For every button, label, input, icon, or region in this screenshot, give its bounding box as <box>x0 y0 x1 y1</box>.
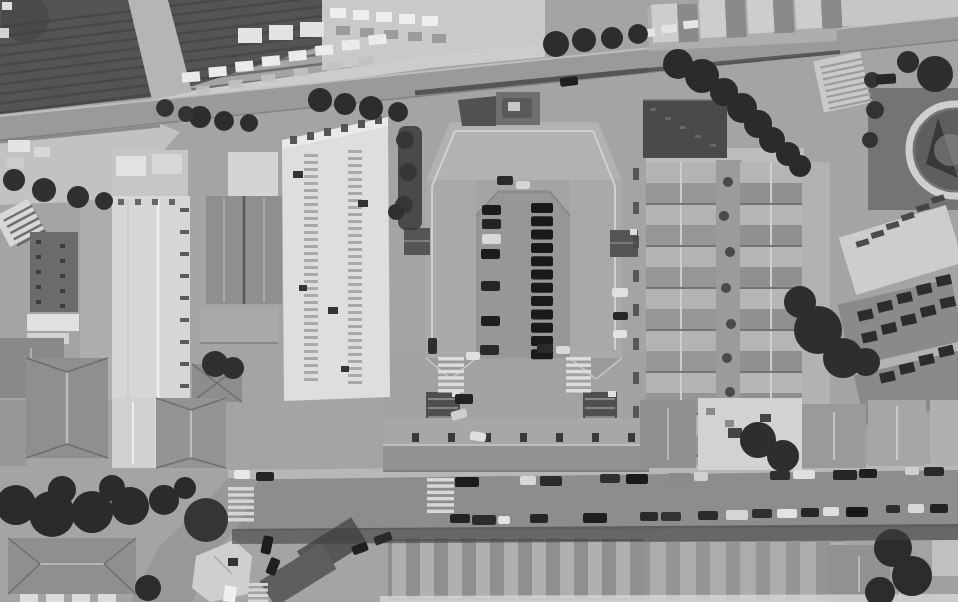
parked-car <box>626 474 648 484</box>
skylight-strip <box>304 315 318 318</box>
roadside-trucks <box>368 34 387 46</box>
shed-vents <box>36 240 41 244</box>
trailers-white <box>422 16 438 26</box>
roadside-trucks-2 <box>359 56 374 65</box>
skylight-strip <box>304 259 318 262</box>
warehouse-ticks <box>180 296 189 300</box>
trailers-gray <box>336 26 350 35</box>
truck <box>34 147 50 157</box>
crosswalk-plaza-west <box>438 376 464 380</box>
rubble <box>706 408 715 415</box>
pleat-ridges <box>420 538 434 598</box>
parked-car <box>924 467 944 476</box>
tree <box>3 169 25 191</box>
tree <box>178 106 194 122</box>
rowhouse-b-valleys <box>740 245 802 247</box>
pleat-ridges <box>616 538 630 598</box>
shed-vents <box>60 259 65 263</box>
skylight-strip <box>348 374 362 377</box>
crosswalk-west-street <box>228 487 254 491</box>
roadside-trucks-2 <box>228 80 243 89</box>
roof-hatch <box>341 366 349 372</box>
trailers-white <box>399 14 415 24</box>
pavilion-ribs <box>585 407 615 409</box>
parked-car <box>846 507 868 517</box>
top-house-roofs-light <box>651 3 679 42</box>
north-annex-skylight <box>508 102 520 111</box>
rowhouse-a-valleys <box>646 245 716 247</box>
pavilion-hatch <box>228 558 238 566</box>
pleat-ridges <box>476 538 490 598</box>
top-house-roofs-light <box>795 0 823 29</box>
pleat-ridges <box>448 538 462 598</box>
crosswalk-plaza-west <box>438 357 464 361</box>
skylight-strip <box>348 213 362 216</box>
pleat-ridges <box>588 538 602 598</box>
skylight-strip <box>304 189 318 192</box>
skylight-strip <box>348 192 362 195</box>
chimneys <box>592 433 599 442</box>
tree <box>156 99 174 117</box>
tree <box>214 111 234 131</box>
crosswalk-curve <box>248 594 268 597</box>
field-sheds <box>269 25 293 40</box>
parked-car <box>482 219 501 229</box>
tree <box>388 204 404 220</box>
skylight-strip <box>304 203 318 206</box>
roadside-trucks <box>262 55 281 67</box>
car-column <box>531 323 553 333</box>
parked-car <box>886 505 900 513</box>
parked-car <box>497 176 513 185</box>
east-fence-posts <box>633 270 639 282</box>
skylight-strip <box>304 350 318 353</box>
tree <box>135 575 161 601</box>
crosswalk-plaza-east <box>566 363 591 367</box>
crosswalk-plaza-east <box>566 389 591 393</box>
skylight-strip <box>304 364 318 367</box>
tree <box>32 178 56 202</box>
shed-vents <box>36 285 41 289</box>
crosswalk-street <box>427 497 454 501</box>
parked-car <box>472 515 496 525</box>
tree <box>719 211 729 221</box>
crosswalk-plaza-east <box>566 383 591 387</box>
pavilion-ribs <box>585 416 615 418</box>
trailers-white <box>353 10 369 20</box>
parked-car <box>498 516 510 524</box>
pavilion-mark <box>608 391 616 397</box>
white-roof-bits <box>98 594 116 602</box>
skylight-strip <box>304 217 318 220</box>
tree <box>721 283 731 293</box>
north-shed-roof <box>152 154 182 174</box>
white-strip-shed <box>27 314 79 331</box>
east-fence-posts <box>633 338 639 350</box>
car-column <box>531 283 553 293</box>
parked-car <box>600 474 620 483</box>
light-patch <box>932 540 958 576</box>
parked-car <box>833 470 857 480</box>
warehouse-windows <box>118 199 124 205</box>
parked-car <box>520 476 536 485</box>
skylight-strip <box>348 241 362 244</box>
parked-car <box>694 472 708 481</box>
top-house-roofs-light <box>747 0 775 34</box>
east-fence-posts <box>633 168 639 180</box>
skylight-strip <box>348 234 362 237</box>
tree <box>725 247 735 257</box>
pleat-ridges <box>650 542 666 600</box>
skylight-strip <box>348 220 362 223</box>
tree <box>396 131 414 149</box>
tree <box>572 28 596 52</box>
tree <box>726 319 736 329</box>
tree <box>222 357 244 379</box>
rowhouse-a-valleys <box>646 287 716 289</box>
car-column <box>531 296 553 306</box>
crosswalk-curve <box>248 583 268 586</box>
crosswalk-curve <box>248 589 268 592</box>
gable-windows <box>324 128 331 136</box>
white-van <box>223 585 237 602</box>
car-column <box>531 309 553 319</box>
warehouse-ticks <box>180 384 189 388</box>
pleat-ridges <box>532 538 546 598</box>
tree <box>48 476 76 504</box>
roadside-trucks-2 <box>326 62 341 71</box>
roadside-trucks-2 <box>261 74 276 83</box>
top-house-roofs-dark <box>725 0 747 38</box>
skylight-strip <box>348 164 362 167</box>
corner-structure <box>0 28 9 38</box>
skylight-strip <box>348 367 362 370</box>
warehouse-windows <box>152 199 158 205</box>
pleat-ridges <box>740 542 756 600</box>
tree <box>897 51 919 73</box>
skylight-strip <box>348 304 362 307</box>
corner-hip-house <box>8 538 136 594</box>
roadside-trucks <box>208 66 227 78</box>
parked-car <box>428 338 437 354</box>
tree <box>852 348 880 376</box>
tree <box>917 56 953 92</box>
tree <box>725 387 735 397</box>
parked-car <box>450 514 470 523</box>
south-wing-upper <box>383 418 649 445</box>
skylight-strip <box>304 245 318 248</box>
skylight-strip <box>348 346 362 349</box>
tree <box>334 93 356 115</box>
roadside-trucks-2 <box>294 68 309 77</box>
white-roof-bits <box>72 594 90 602</box>
rowhouse-a-valleys <box>646 203 716 205</box>
rubble-dark <box>728 428 742 438</box>
corner-structure <box>2 2 12 10</box>
chimneys <box>412 433 419 442</box>
warehouse-ticks <box>180 318 189 322</box>
parked-car <box>537 344 553 353</box>
skylight-strip <box>304 301 318 304</box>
tree <box>95 192 113 210</box>
shed-vents <box>60 274 65 278</box>
tree <box>601 27 623 49</box>
rowhouse-a-valleys <box>646 329 716 331</box>
parked-car <box>876 73 897 84</box>
top-house-roofs-dark <box>821 0 843 29</box>
tree <box>789 155 811 177</box>
courtyard-floor <box>476 190 570 358</box>
aerial-photo-canvas <box>0 0 958 602</box>
parked-car <box>234 470 250 479</box>
gable-windows <box>341 124 348 132</box>
skylight-strip <box>348 269 362 272</box>
skylight-strip <box>348 353 362 356</box>
car-column <box>531 243 553 253</box>
trailers-white <box>376 12 392 22</box>
warehouse-ticks <box>180 340 189 344</box>
tree <box>67 186 89 208</box>
pavilion-ribs <box>428 407 458 409</box>
parked-car <box>640 512 658 521</box>
pleat-ridges <box>800 542 816 600</box>
parked-car <box>793 470 815 479</box>
pleat-ridges <box>392 538 406 598</box>
skylight-strip <box>304 273 318 276</box>
car-column <box>531 203 553 213</box>
parked-car <box>905 467 919 475</box>
tree <box>862 132 878 148</box>
south-wing-lower <box>383 445 649 472</box>
pleat-ridges <box>504 538 518 598</box>
skylight-strip <box>348 178 362 181</box>
parked-car <box>481 316 500 326</box>
crosswalk-street <box>427 484 454 488</box>
skylight-strip <box>348 381 362 384</box>
parked-car <box>455 477 479 487</box>
west-wing <box>426 180 476 358</box>
small-house <box>0 400 26 466</box>
tree <box>866 101 884 119</box>
roadside-trucks <box>341 39 360 51</box>
gable-windows <box>307 132 314 140</box>
parked-car <box>668 473 692 483</box>
car-column <box>531 256 553 266</box>
crosswalk-plaza-west <box>438 389 464 393</box>
crosswalk-west-street <box>228 493 254 497</box>
pleat-ridges <box>710 542 726 600</box>
parked-cars-road-top <box>683 20 699 30</box>
trailers-gray <box>408 32 422 41</box>
north-sheds <box>228 152 278 196</box>
roadside-trucks-2 <box>196 85 211 94</box>
trailers-gray <box>432 34 446 43</box>
skylight-strip <box>304 308 318 311</box>
parked-car <box>726 510 748 520</box>
roadside-trucks <box>288 50 307 62</box>
skylight-strip <box>304 252 318 255</box>
skylight-strip <box>304 336 318 339</box>
shed-vents <box>36 255 41 259</box>
skylight-strip <box>304 168 318 171</box>
skylight-strip <box>348 318 362 321</box>
skylight-strip <box>304 378 318 381</box>
chimneys <box>448 433 455 442</box>
skylight-strip <box>304 357 318 360</box>
shed-vents <box>36 300 41 304</box>
tree <box>399 163 417 181</box>
warehouse-ticks <box>180 362 189 366</box>
tree <box>722 353 732 363</box>
tree <box>174 477 196 499</box>
pavilion-ribs <box>585 398 615 400</box>
skylight-strip <box>348 276 362 279</box>
tree <box>628 24 648 44</box>
parked-car <box>698 511 718 520</box>
east-fence-posts <box>633 304 639 316</box>
roof-hatch <box>293 171 303 178</box>
shed-vents <box>60 304 65 308</box>
parked-car <box>481 281 500 291</box>
skylight-strip <box>304 280 318 283</box>
east-fence-posts <box>633 372 639 384</box>
rowhouse-b-valleys <box>740 329 802 331</box>
crosswalk-west-street <box>228 512 254 516</box>
shed-vents <box>36 270 41 274</box>
skylight-strip <box>304 266 318 269</box>
chimneys <box>520 433 527 442</box>
flat-roof-stipple <box>680 126 686 129</box>
shed-vents <box>60 289 65 293</box>
tree <box>359 96 383 120</box>
rowhouse-a-valleys <box>646 371 716 373</box>
roof-hatch <box>358 200 368 207</box>
skylight-strip <box>348 171 362 174</box>
tree <box>99 475 125 501</box>
warehouse-windows <box>135 199 141 205</box>
parked-car <box>823 507 839 516</box>
parked-car <box>540 476 562 486</box>
parked-car <box>930 504 948 513</box>
roadside-trucks <box>182 71 201 83</box>
skylight-strip <box>348 185 362 188</box>
skylight-strip <box>304 182 318 185</box>
warehouse-ticks <box>180 252 189 256</box>
car-column <box>531 230 553 240</box>
crosswalk-west-street <box>228 506 254 510</box>
truck <box>8 140 30 152</box>
east-fence-posts <box>633 202 639 214</box>
parked-car <box>556 346 570 354</box>
flat-roof-stipple <box>665 117 671 120</box>
crosswalk-west-street <box>228 518 254 522</box>
car-column <box>531 270 553 280</box>
shed-vents <box>60 244 65 248</box>
tree <box>892 556 932 596</box>
crosswalk-plaza-west <box>438 363 464 367</box>
rowhouse-b-valleys <box>740 203 802 205</box>
parked-car <box>530 514 548 523</box>
parked-car <box>770 471 790 480</box>
skylight-strip <box>348 283 362 286</box>
pleat-ridges <box>680 542 696 600</box>
trailers-white <box>330 8 346 18</box>
car-column <box>531 216 553 226</box>
skylight-strip <box>304 224 318 227</box>
warehouse-ticks <box>180 230 189 234</box>
skylight-strip <box>304 322 318 325</box>
skylight-strip <box>304 161 318 164</box>
top-house-roofs-dark <box>773 0 795 33</box>
chimneys <box>628 433 635 442</box>
skylight-strip <box>348 339 362 342</box>
white-roof-bits <box>20 594 38 602</box>
parked-car <box>613 312 628 320</box>
crosswalk-plaza-east <box>566 370 591 374</box>
annex-shadow <box>458 96 496 126</box>
gable-windows <box>290 136 297 144</box>
north-shed-roof <box>116 156 146 176</box>
skylight-strip <box>304 196 318 199</box>
field-sheds <box>238 28 262 43</box>
house <box>930 400 958 466</box>
flat-roof-annex <box>200 308 278 344</box>
parked-car <box>482 205 501 215</box>
crosswalk-plaza-east <box>566 376 591 380</box>
skylight-strip <box>348 150 362 153</box>
parked-car <box>482 234 501 244</box>
east-fence-posts <box>633 236 639 248</box>
parked-cars-road-top <box>661 24 677 34</box>
warehouse-windows <box>169 199 175 205</box>
pavilion-ribs <box>428 398 458 400</box>
crosswalk-street <box>427 491 454 495</box>
east-fence-posts <box>633 406 639 418</box>
aerial-orthophoto <box>0 0 958 602</box>
crosswalk-street <box>427 510 454 514</box>
parked-car <box>801 508 819 517</box>
skylight-strip <box>304 294 318 297</box>
truck <box>6 158 24 168</box>
parked-car <box>481 249 500 259</box>
skylight-strip <box>348 325 362 328</box>
parked-car <box>256 472 274 481</box>
big-warehouse <box>282 127 390 401</box>
parked-car <box>455 394 473 404</box>
east-annex-mark <box>630 229 637 235</box>
flat-roof-stipple <box>695 135 701 138</box>
chimneys <box>556 433 563 442</box>
warehouse-ticks <box>180 274 189 278</box>
rubble-dark <box>760 414 771 422</box>
warehouse-ticks <box>180 208 189 212</box>
white-roof-bits <box>46 594 64 602</box>
tree <box>784 286 816 318</box>
field-sheds <box>300 22 324 37</box>
pleat-ridges <box>560 538 574 598</box>
skylight-strip <box>304 329 318 332</box>
crosswalk-street <box>427 478 454 482</box>
gable-windows <box>358 120 365 128</box>
skylight-strip <box>348 262 362 265</box>
skylight-strip <box>348 227 362 230</box>
tree <box>184 498 228 542</box>
pleat-ridges-group <box>392 538 630 598</box>
roof-hatch <box>328 307 338 314</box>
tree <box>240 114 258 132</box>
skylight-strip <box>348 255 362 258</box>
skylight-strip <box>304 238 318 241</box>
